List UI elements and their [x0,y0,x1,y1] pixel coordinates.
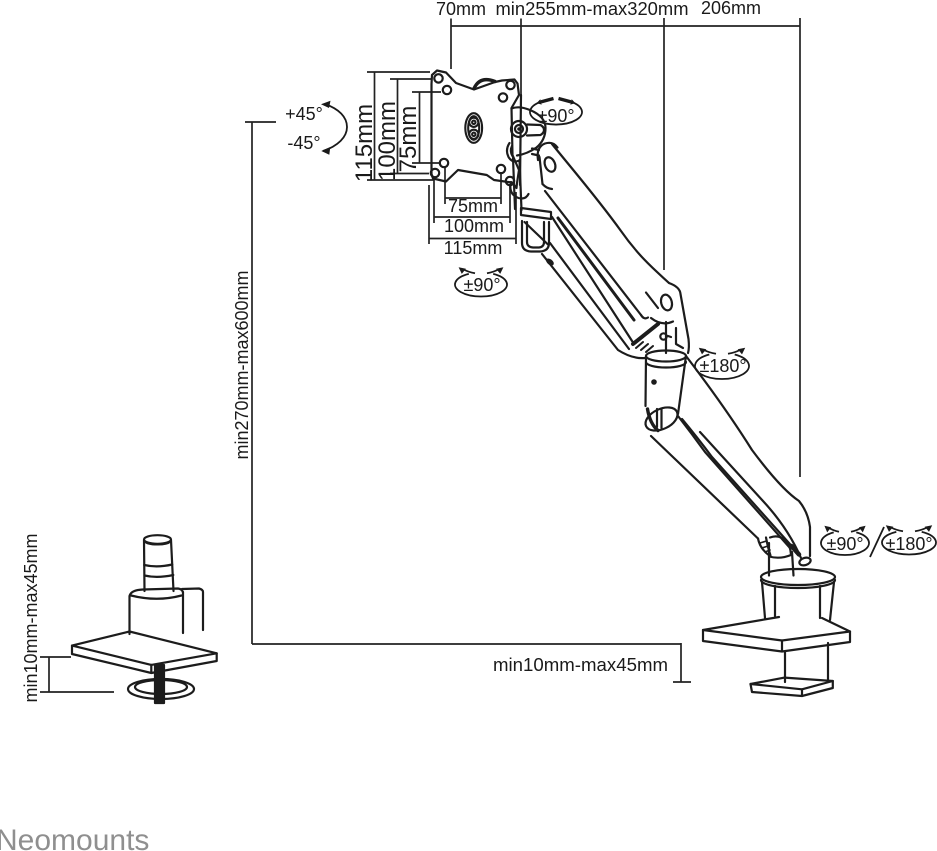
svg-text:-45°: -45° [287,133,320,153]
svg-text:min10mm-max45mm: min10mm-max45mm [21,533,41,702]
svg-text:min10mm-max45mm: min10mm-max45mm [493,655,668,675]
svg-text:±90°: ±90° [537,106,574,126]
svg-text:70mm: 70mm [436,0,486,19]
svg-text:±180°: ±180° [699,356,746,376]
svg-text:115mm: 115mm [444,238,503,258]
svg-text:±180°: ±180° [885,534,932,554]
svg-text:min270mm-max600mm: min270mm-max600mm [232,270,252,459]
svg-text:+45°: +45° [285,104,323,124]
svg-text:75mm: 75mm [448,196,498,216]
svg-text:75mm: 75mm [395,106,422,173]
svg-text:min255mm-max320mm: min255mm-max320mm [496,0,689,19]
svg-text:Neomounts: Neomounts [0,824,149,851]
svg-text:206mm: 206mm [701,0,761,18]
svg-text:±90°: ±90° [826,534,863,554]
svg-text:±90°: ±90° [463,275,500,295]
svg-text:100mm: 100mm [444,216,504,236]
